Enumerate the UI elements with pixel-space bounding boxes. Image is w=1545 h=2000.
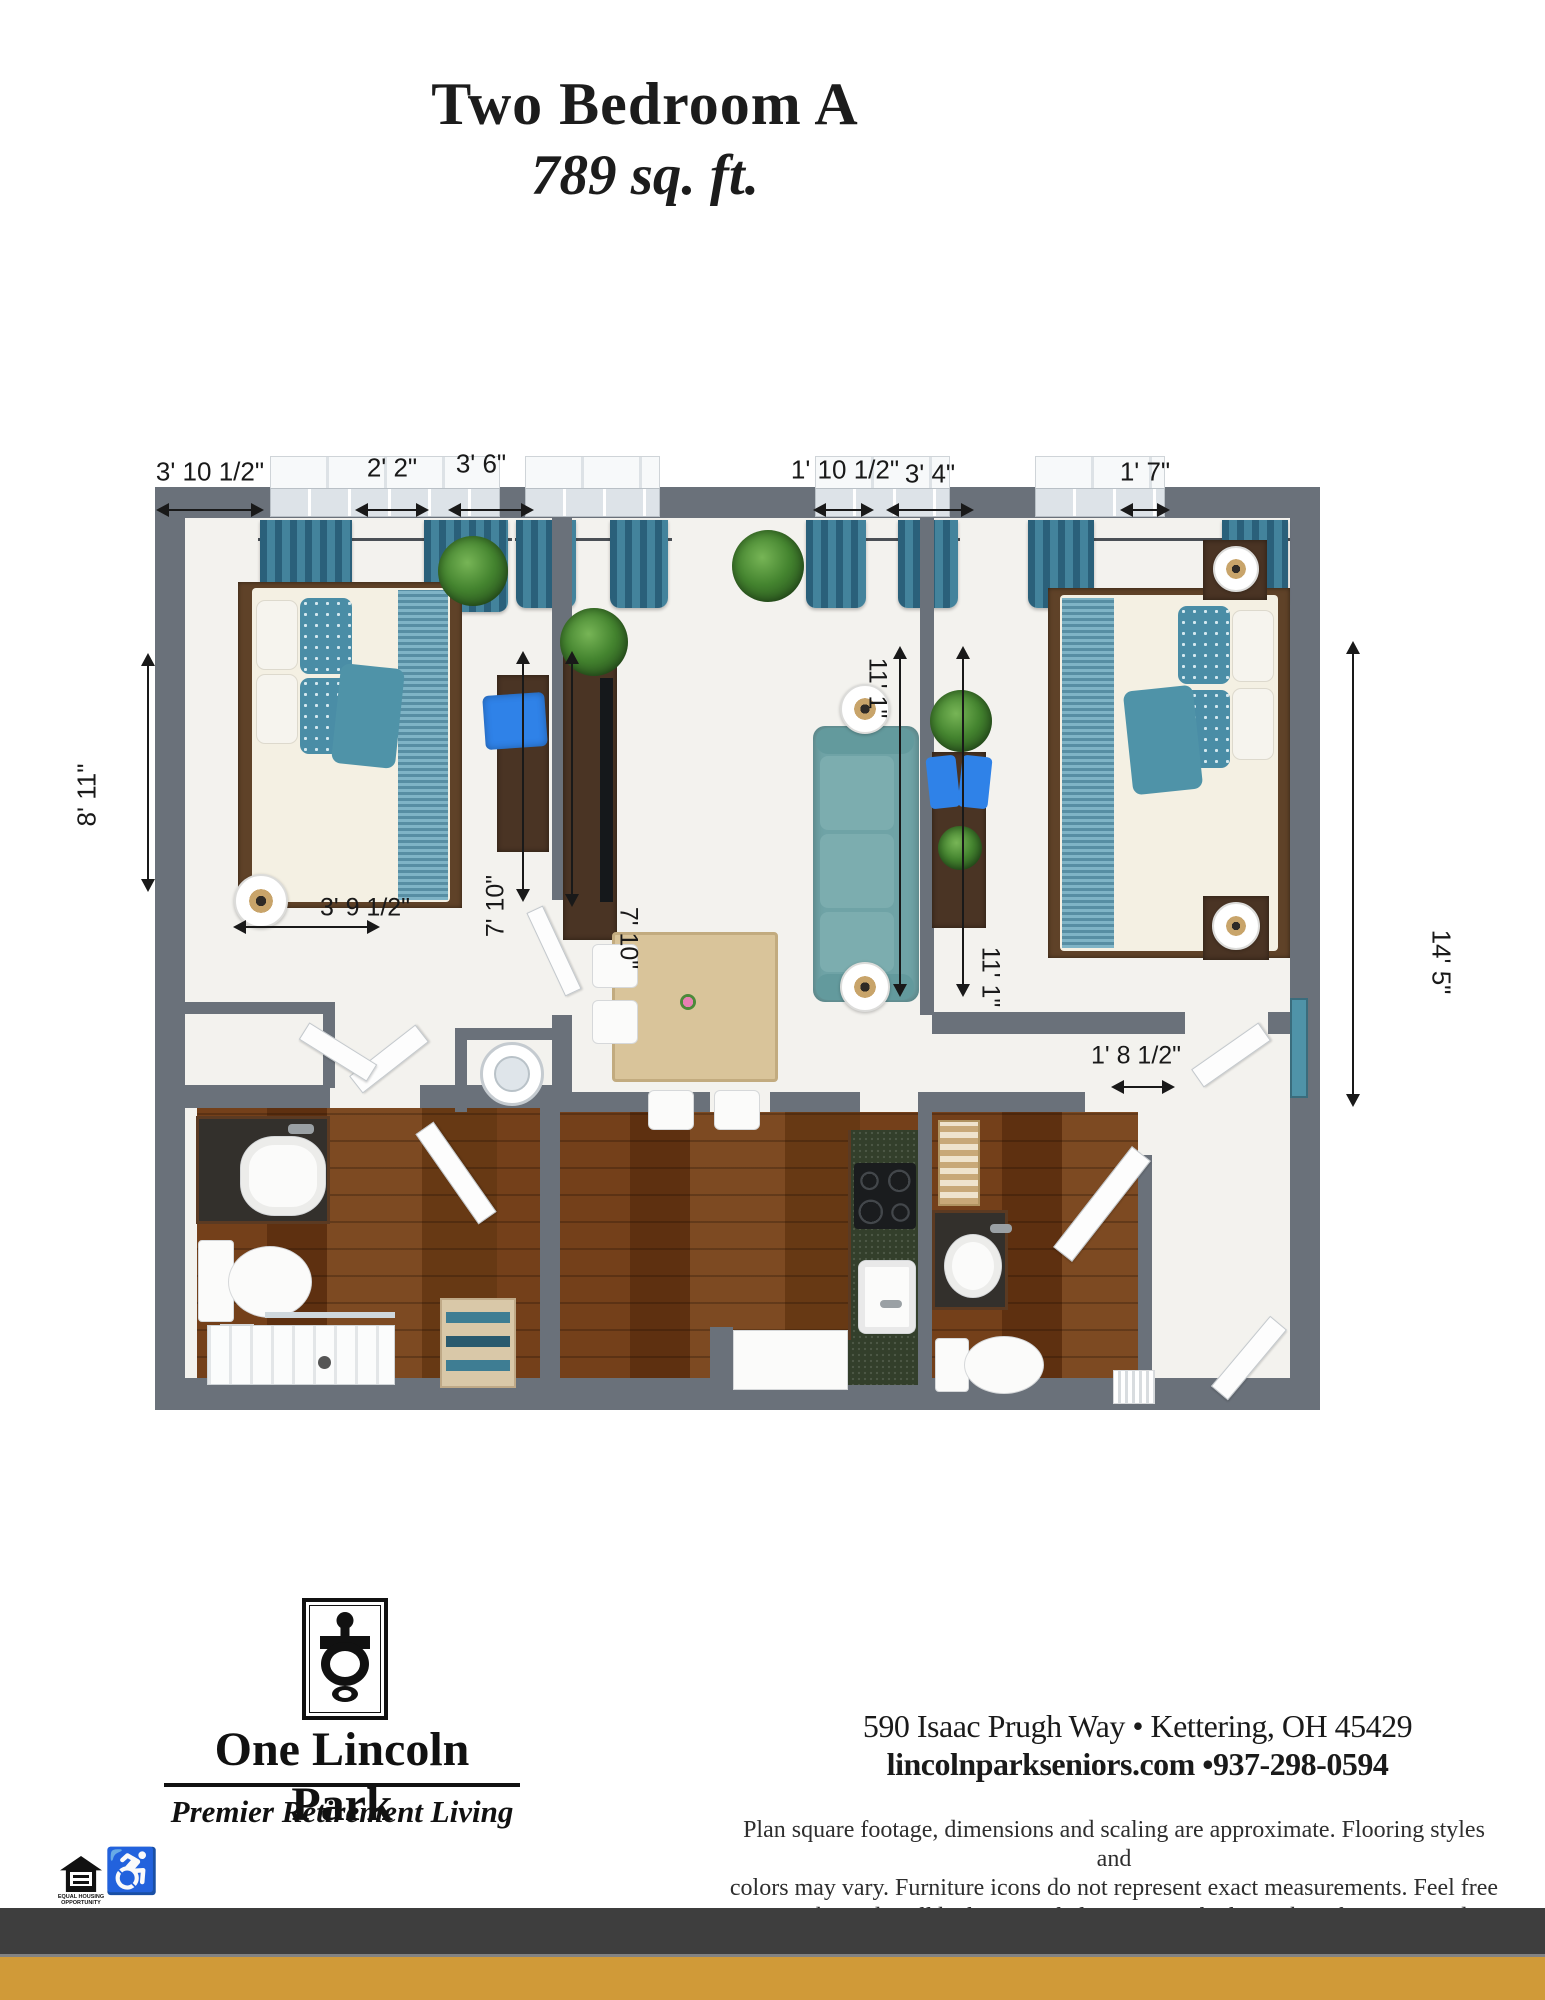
dim-arrow — [1113, 1086, 1173, 1088]
pillow — [331, 663, 405, 769]
desk-chair — [482, 692, 548, 750]
wall — [455, 1028, 560, 1040]
dim-arrow — [158, 509, 262, 511]
disclaimer-line: Plan square footage, dimensions and scal… — [723, 1816, 1505, 1874]
curtain — [610, 520, 668, 608]
glass-divider — [265, 1312, 395, 1318]
wall-art — [1290, 998, 1308, 1098]
desk-chair — [925, 755, 960, 810]
faucet-icon — [990, 1224, 1012, 1233]
dim-arrow — [899, 648, 901, 995]
equal-housing-caption: EQUAL HOUSING OPPORTUNITY — [54, 1894, 108, 1906]
faucet-icon — [880, 1300, 902, 1308]
pillow — [1232, 688, 1274, 760]
knocker-ring — [321, 1642, 369, 1686]
dim-arrow — [147, 655, 149, 890]
lamp-icon — [1226, 559, 1246, 579]
sofa-cushion — [820, 756, 894, 830]
address-line: 590 Isaac Prugh Way • Kettering, OH 4542… — [755, 1708, 1520, 1745]
towel-ladder — [938, 1120, 980, 1206]
shower — [207, 1325, 395, 1385]
dim-arrow — [522, 653, 524, 900]
bed-2-runner — [1062, 598, 1114, 948]
towel-stack — [446, 1336, 510, 1347]
wall — [932, 1092, 1085, 1112]
dimension-label: 3' 9 1/2" — [320, 894, 410, 923]
wall — [185, 1002, 335, 1014]
equal-housing-bar — [73, 1881, 89, 1884]
dim-arrow — [235, 926, 378, 928]
wall — [1138, 1155, 1152, 1378]
dimension-label: 14' 5" — [1426, 930, 1457, 995]
toilet-bowl — [228, 1246, 312, 1318]
wall — [710, 1327, 733, 1378]
dimension-label: 7' 10" — [482, 875, 511, 937]
dimension-label: 1' 10 1/2" — [791, 455, 899, 486]
pillow — [300, 598, 352, 674]
website-phone-line: lincolnparkseniors.com •937-298-0594 — [755, 1746, 1520, 1783]
pillow — [256, 600, 298, 670]
dim-arrow — [962, 648, 964, 995]
pillow — [256, 674, 298, 744]
knocker-plate-inner — [339, 1690, 352, 1698]
washer-drum — [494, 1056, 530, 1092]
pillow — [1232, 610, 1274, 682]
dimension-label: 11' 1" — [976, 947, 1005, 1007]
wall — [932, 1012, 1185, 1034]
pillow — [1123, 685, 1203, 796]
cooktop — [854, 1163, 916, 1229]
plant — [438, 536, 508, 606]
appliance — [1113, 1370, 1155, 1404]
dimension-label: 1' 7" — [1120, 457, 1170, 488]
window — [815, 488, 950, 517]
dimension-label: 11' 1" — [863, 658, 892, 718]
faucet-icon — [288, 1124, 314, 1134]
wall — [185, 1085, 330, 1108]
wall — [1290, 487, 1320, 1410]
dining-chair — [592, 1000, 638, 1044]
dimension-label: 2' 2" — [367, 453, 417, 484]
footer-gold-bar — [0, 1957, 1545, 2000]
wall — [770, 1092, 860, 1112]
pillow — [1178, 606, 1230, 684]
kitchen-cabinet — [733, 1330, 848, 1390]
wall — [155, 487, 185, 1410]
square-footage: 789 sq. ft. — [0, 143, 1290, 208]
sink — [944, 1234, 1002, 1298]
dim-arrow — [450, 509, 532, 511]
door-knocker-logo-icon — [302, 1598, 388, 1720]
window — [1035, 488, 1165, 517]
vase-flowers — [680, 994, 696, 1010]
towel-stack — [446, 1360, 510, 1371]
dim-arrow — [1122, 509, 1168, 511]
floor-plan-page: Two Bedroom A 789 sq. ft. — [0, 0, 1545, 2000]
sink — [240, 1136, 326, 1216]
dimension-label: 1' 8 1/2" — [1091, 1042, 1181, 1071]
dim-arrow — [357, 509, 427, 511]
tv — [600, 678, 613, 902]
towel-stack — [446, 1312, 510, 1323]
wall — [540, 1085, 560, 1378]
lamp-icon — [249, 889, 273, 913]
window-sill — [525, 456, 660, 489]
plant — [930, 690, 992, 752]
toilet-bowl — [964, 1336, 1044, 1394]
lamp-icon — [854, 976, 876, 998]
brand-underline — [164, 1783, 520, 1787]
dimension-label: 3' 4" — [905, 459, 955, 490]
footer-dark-bar — [0, 1908, 1545, 1954]
kitchen-sink — [858, 1260, 916, 1334]
dim-arrow — [1352, 643, 1354, 1105]
disclaimer-line: colors may vary. Furniture icons do not … — [723, 1874, 1505, 1903]
plant — [732, 530, 804, 602]
page-title: Two Bedroom A — [0, 70, 1290, 139]
lamp-icon — [1226, 916, 1246, 936]
title-block: Two Bedroom A 789 sq. ft. — [0, 70, 1290, 208]
equal-housing-bar — [73, 1875, 89, 1878]
window — [270, 488, 500, 517]
wall — [1268, 1012, 1290, 1034]
dining-chair — [648, 1090, 694, 1130]
wall — [455, 1028, 467, 1112]
dimension-label: 8' 11" — [72, 764, 103, 827]
dim-arrow — [571, 653, 573, 905]
dimension-label: 3' 10 1/2" — [156, 457, 264, 488]
dimension-label: 3' 6" — [456, 449, 506, 480]
window — [525, 488, 660, 517]
brand-tagline: Premier Retirement Living — [158, 1794, 526, 1830]
plant — [938, 826, 982, 870]
dimension-label: 7' 10" — [614, 907, 643, 969]
bed-1-runner — [398, 590, 448, 900]
dining-chair — [714, 1090, 760, 1130]
wall — [918, 1092, 932, 1378]
wheelchair-icon: ♿ — [104, 1850, 159, 1894]
dim-arrow — [815, 509, 872, 511]
dim-arrow — [888, 509, 972, 511]
curtain — [806, 520, 866, 608]
sofa-cushion — [820, 834, 894, 908]
shower-drain — [318, 1356, 331, 1369]
